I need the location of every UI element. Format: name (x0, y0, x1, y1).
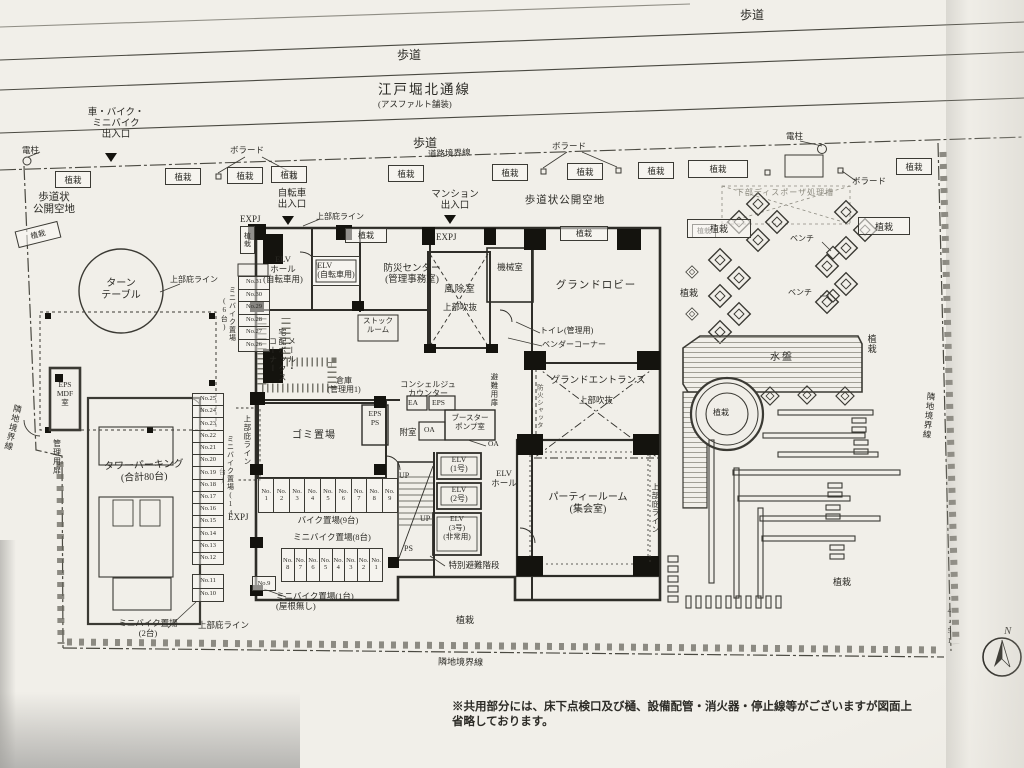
open-space-left-label: 歩道状 公開空地 (22, 192, 86, 217)
eps-ps-label: EPS PS (363, 410, 387, 428)
stall-label: No.19 (193, 466, 223, 478)
elv-bike-label: ELV (自転車用) (312, 256, 360, 286)
mini14-stalls: No.25No.24No.23No.22No.21No.20No.19No.18… (192, 393, 224, 565)
machine-room-label: 機械室 (488, 262, 532, 272)
stall-label: No.14 (193, 527, 223, 539)
bollard-label-left: ボラード (230, 145, 264, 155)
stall-label: No. 4 (304, 479, 319, 512)
garden (650, 186, 900, 608)
mansion-entrance-arrow (444, 215, 456, 224)
stall-label: No. 7 (294, 549, 307, 581)
stall-label: No.12 (193, 552, 223, 564)
sidewalk-far-label: 歩道 (740, 8, 764, 22)
tower-parking-label: タワーパーキング (合計80台) (90, 458, 199, 485)
bosai-label: 防災センター (管理事務室) (364, 264, 460, 286)
mini1-label: ミニバイク置場(1台) (屋根無し) (276, 591, 386, 611)
mini2-label: ミニバイク置場 (2台) (108, 618, 188, 638)
mini6-label: ミニバイク置場(6台) (220, 282, 237, 346)
compass (983, 638, 1021, 676)
footnote: ※共用部分には、床下点検口及び樋、設備配管・消火器・停止線等がございますが図面上… (452, 700, 912, 730)
eps-label: EPS (432, 399, 445, 408)
planting-box: 植栽 (227, 167, 263, 184)
stall-label: No.22 (193, 430, 223, 442)
canopy-line-party: 上部庇ライン (650, 476, 659, 540)
stall-label: No. 1 (369, 549, 382, 581)
planting-box: 植栽 (492, 164, 528, 181)
stall-label: No.11 (193, 575, 223, 588)
fire-shutter-label: 防火シャッター (527, 382, 542, 430)
evac-door-label: 避難用扉 (489, 368, 498, 412)
stall-label: No. 4 (332, 549, 345, 581)
stall-label: No.10 (193, 588, 223, 602)
grand-entrance-label: グランドエントランス (538, 376, 658, 387)
stall-label: No.16 (193, 503, 223, 515)
tower-parking-outline (88, 398, 200, 624)
turntable-label: ターン テーブル (91, 278, 151, 302)
canopy-line-turntable: 上部庇ライン (170, 275, 218, 284)
elv-hall-label: ELV ホール (486, 468, 522, 488)
planting-box: 植栽 (388, 165, 424, 182)
water-basin-label: 水盤 (770, 352, 794, 364)
stall-label: No.13 (193, 540, 223, 552)
stall-label: No. 9 (382, 479, 397, 512)
elv2-label: ELV (2号) (439, 485, 479, 504)
bike-stalls: No. 1No. 2No. 3No. 4No. 5No. 6No. 7No. 8… (258, 478, 398, 513)
planting-box: 植栽 (345, 228, 387, 243)
sidewalk-far2-label: 歩道 (397, 48, 421, 62)
pole-right-label: 電柱 (786, 131, 803, 141)
stall-label: No.15 (193, 515, 223, 527)
mini2-stalls: No.11No.10 (192, 574, 224, 602)
stall-label: No. 6 (306, 549, 319, 581)
up-label-2: UP (420, 514, 430, 523)
canopy-line-bottom: 上部庇ライン (198, 620, 249, 630)
oa-label: OA (424, 426, 435, 435)
mini8-label: ミニバイク置場(8台) (276, 532, 388, 542)
road-boundary-label: 道路境界線 (428, 147, 471, 158)
elv1-label: ELV (1号) (439, 455, 479, 474)
floorplan-drawing (0, 0, 1024, 768)
garbage-label: ゴミ置場 (282, 430, 346, 442)
stall-label: No. 7 (351, 479, 366, 512)
stall-label: No.29 (239, 301, 269, 314)
bike-area-label: バイク置場(9台) (282, 515, 374, 525)
floorplan-photo: 歩道 歩道 江戸堀北通線 (アスファルト舗装) 歩道 道路境界線 車・バイク・ … (0, 0, 1024, 768)
stall-label: No. 5 (320, 479, 335, 512)
bollard-label-right: ボラード (852, 176, 886, 186)
expj-top-center: EXPJ (436, 232, 457, 243)
stall-label: No. 6 (335, 479, 350, 512)
stall-label: No. 5 (319, 549, 332, 581)
up-label-1: UP (399, 471, 409, 480)
compass-n-label: N (1004, 625, 1011, 638)
mansion-entrance-label: マンション 出入口 (425, 190, 485, 212)
pole-left-label: 電柱 (22, 145, 39, 155)
eps-mdf-label: EPS MDF 室 (51, 381, 79, 408)
planting-label: 植栽 (456, 615, 474, 626)
vehicle-entrance-arrow (105, 153, 117, 162)
special-stairs-label: 特別避難階段 (438, 560, 510, 570)
stock-room-label: ストック ルーム (360, 317, 396, 335)
stall-label: No. 2 (273, 479, 288, 512)
planting-label: 植栽 (680, 288, 698, 299)
ps-label: PS (404, 544, 413, 553)
stall-label: No.25 (193, 394, 223, 405)
windbreak-sub-label: 上部吹抜 (432, 302, 488, 312)
mini6-stalls: No.31No.30No.29No.28No.27No.26 (238, 276, 270, 352)
concierge-label: コンシェルジュ カウンター (396, 380, 460, 399)
road-surface-label: (アスファルト舗装) (378, 99, 452, 109)
disposer-label: 下部ディスポーザ処理槽 (715, 188, 855, 197)
stall-label: No.21 (193, 442, 223, 454)
elv3-label: ELV (3号) (非常用) (435, 515, 479, 542)
bicycle-entrance-arrow (282, 216, 294, 225)
stall-label: No. 3 (344, 549, 357, 581)
grand-lobby-label: グランドロビー (538, 280, 654, 292)
stall-label: No.27 (239, 326, 269, 339)
vendor-label: ベンダーコーナー (542, 340, 606, 349)
bench-label: ベンチ (790, 234, 814, 243)
planting-label: 植栽 (866, 328, 877, 360)
planting-box: 植栽 (687, 219, 751, 238)
planting-box: 植栽 (896, 158, 932, 175)
stall-label: No. 1 (259, 479, 273, 512)
elv-hall-bike-label: ELV ホール (自転車用) (256, 254, 310, 284)
expj-top-left: EXPJ (240, 214, 261, 225)
stall-label: No.28 (239, 314, 269, 327)
stall-label: No.18 (193, 479, 223, 491)
windbreak-label: 風除室 (432, 285, 488, 296)
stall-label: No.23 (193, 417, 223, 429)
canopy-line-top: 上部庇ライン (316, 212, 364, 221)
stall-label: No.20 (193, 454, 223, 466)
party-room-label: パーティールーム (集会室) (532, 492, 644, 516)
expj-left: EXPJ (228, 512, 249, 523)
stall-label: No. 8 (282, 549, 294, 581)
planting-box: 植栽 (271, 166, 307, 183)
bicycle-entrance-label: 自転車 出入口 (264, 189, 320, 211)
stall-label: No.24 (193, 405, 223, 417)
stall-no9: No.9 (252, 576, 276, 591)
toilet-label: トイレ(管理用) (540, 326, 593, 335)
planting-box: 植栽 (858, 217, 910, 235)
canopy-line-col: 上部庇ライン (242, 412, 251, 468)
booster-label: ブースター ポンプ室 (444, 414, 496, 432)
road-name-label: 江戸堀北通線 (378, 82, 471, 98)
planting-box: 植栽 (688, 160, 748, 178)
boundary-bottom-label: 隣地境界線 (438, 657, 483, 668)
planting-box: 植栽 (567, 163, 603, 180)
planting-label-circle: 植栽 (713, 408, 729, 417)
oa-label-2: OA (488, 440, 499, 449)
planting-box: 植栽 (55, 171, 91, 188)
stall-label: No. 8 (366, 479, 381, 512)
stall-label: No.30 (239, 289, 269, 302)
admin-door-label: 管理用扉 (52, 432, 61, 482)
storage-label: 倉庫 (管理用1) (316, 376, 372, 395)
planting-box: 植栽 (560, 226, 608, 241)
vehicle-entrance-label: 車・バイク・ ミニバイク 出入口 (80, 108, 152, 142)
street-lines (0, 4, 1024, 170)
stall-label: No.26 (239, 339, 269, 352)
stall-label: No. 2 (357, 549, 370, 581)
mailbox-label: メール・ 宅配ボックス コーナー (268, 312, 296, 398)
stall-label: No. 3 (289, 479, 304, 512)
bollard-label-mid: ボラード (552, 141, 586, 151)
fuzoku-label: 附室 (388, 427, 428, 437)
open-space-center-label: 歩道状公開空地 (500, 195, 630, 207)
planting-box: 植栽 (165, 168, 201, 185)
mini8-stalls: No. 8No. 7No. 6No. 5No. 4No. 3No. 2No. 1 (281, 548, 383, 582)
compass-value-label: 4.51 (944, 606, 953, 636)
ea-label: EA (408, 399, 418, 408)
planting-box: 植栽 (638, 162, 674, 179)
grand-entrance-sub-label: 上部吹抜 (556, 395, 636, 405)
stall-label: No.17 (193, 491, 223, 503)
planting-box: 植栽 (240, 226, 255, 254)
bench-label: ベンチ (788, 288, 812, 297)
planting-label: 植栽 (833, 577, 851, 588)
